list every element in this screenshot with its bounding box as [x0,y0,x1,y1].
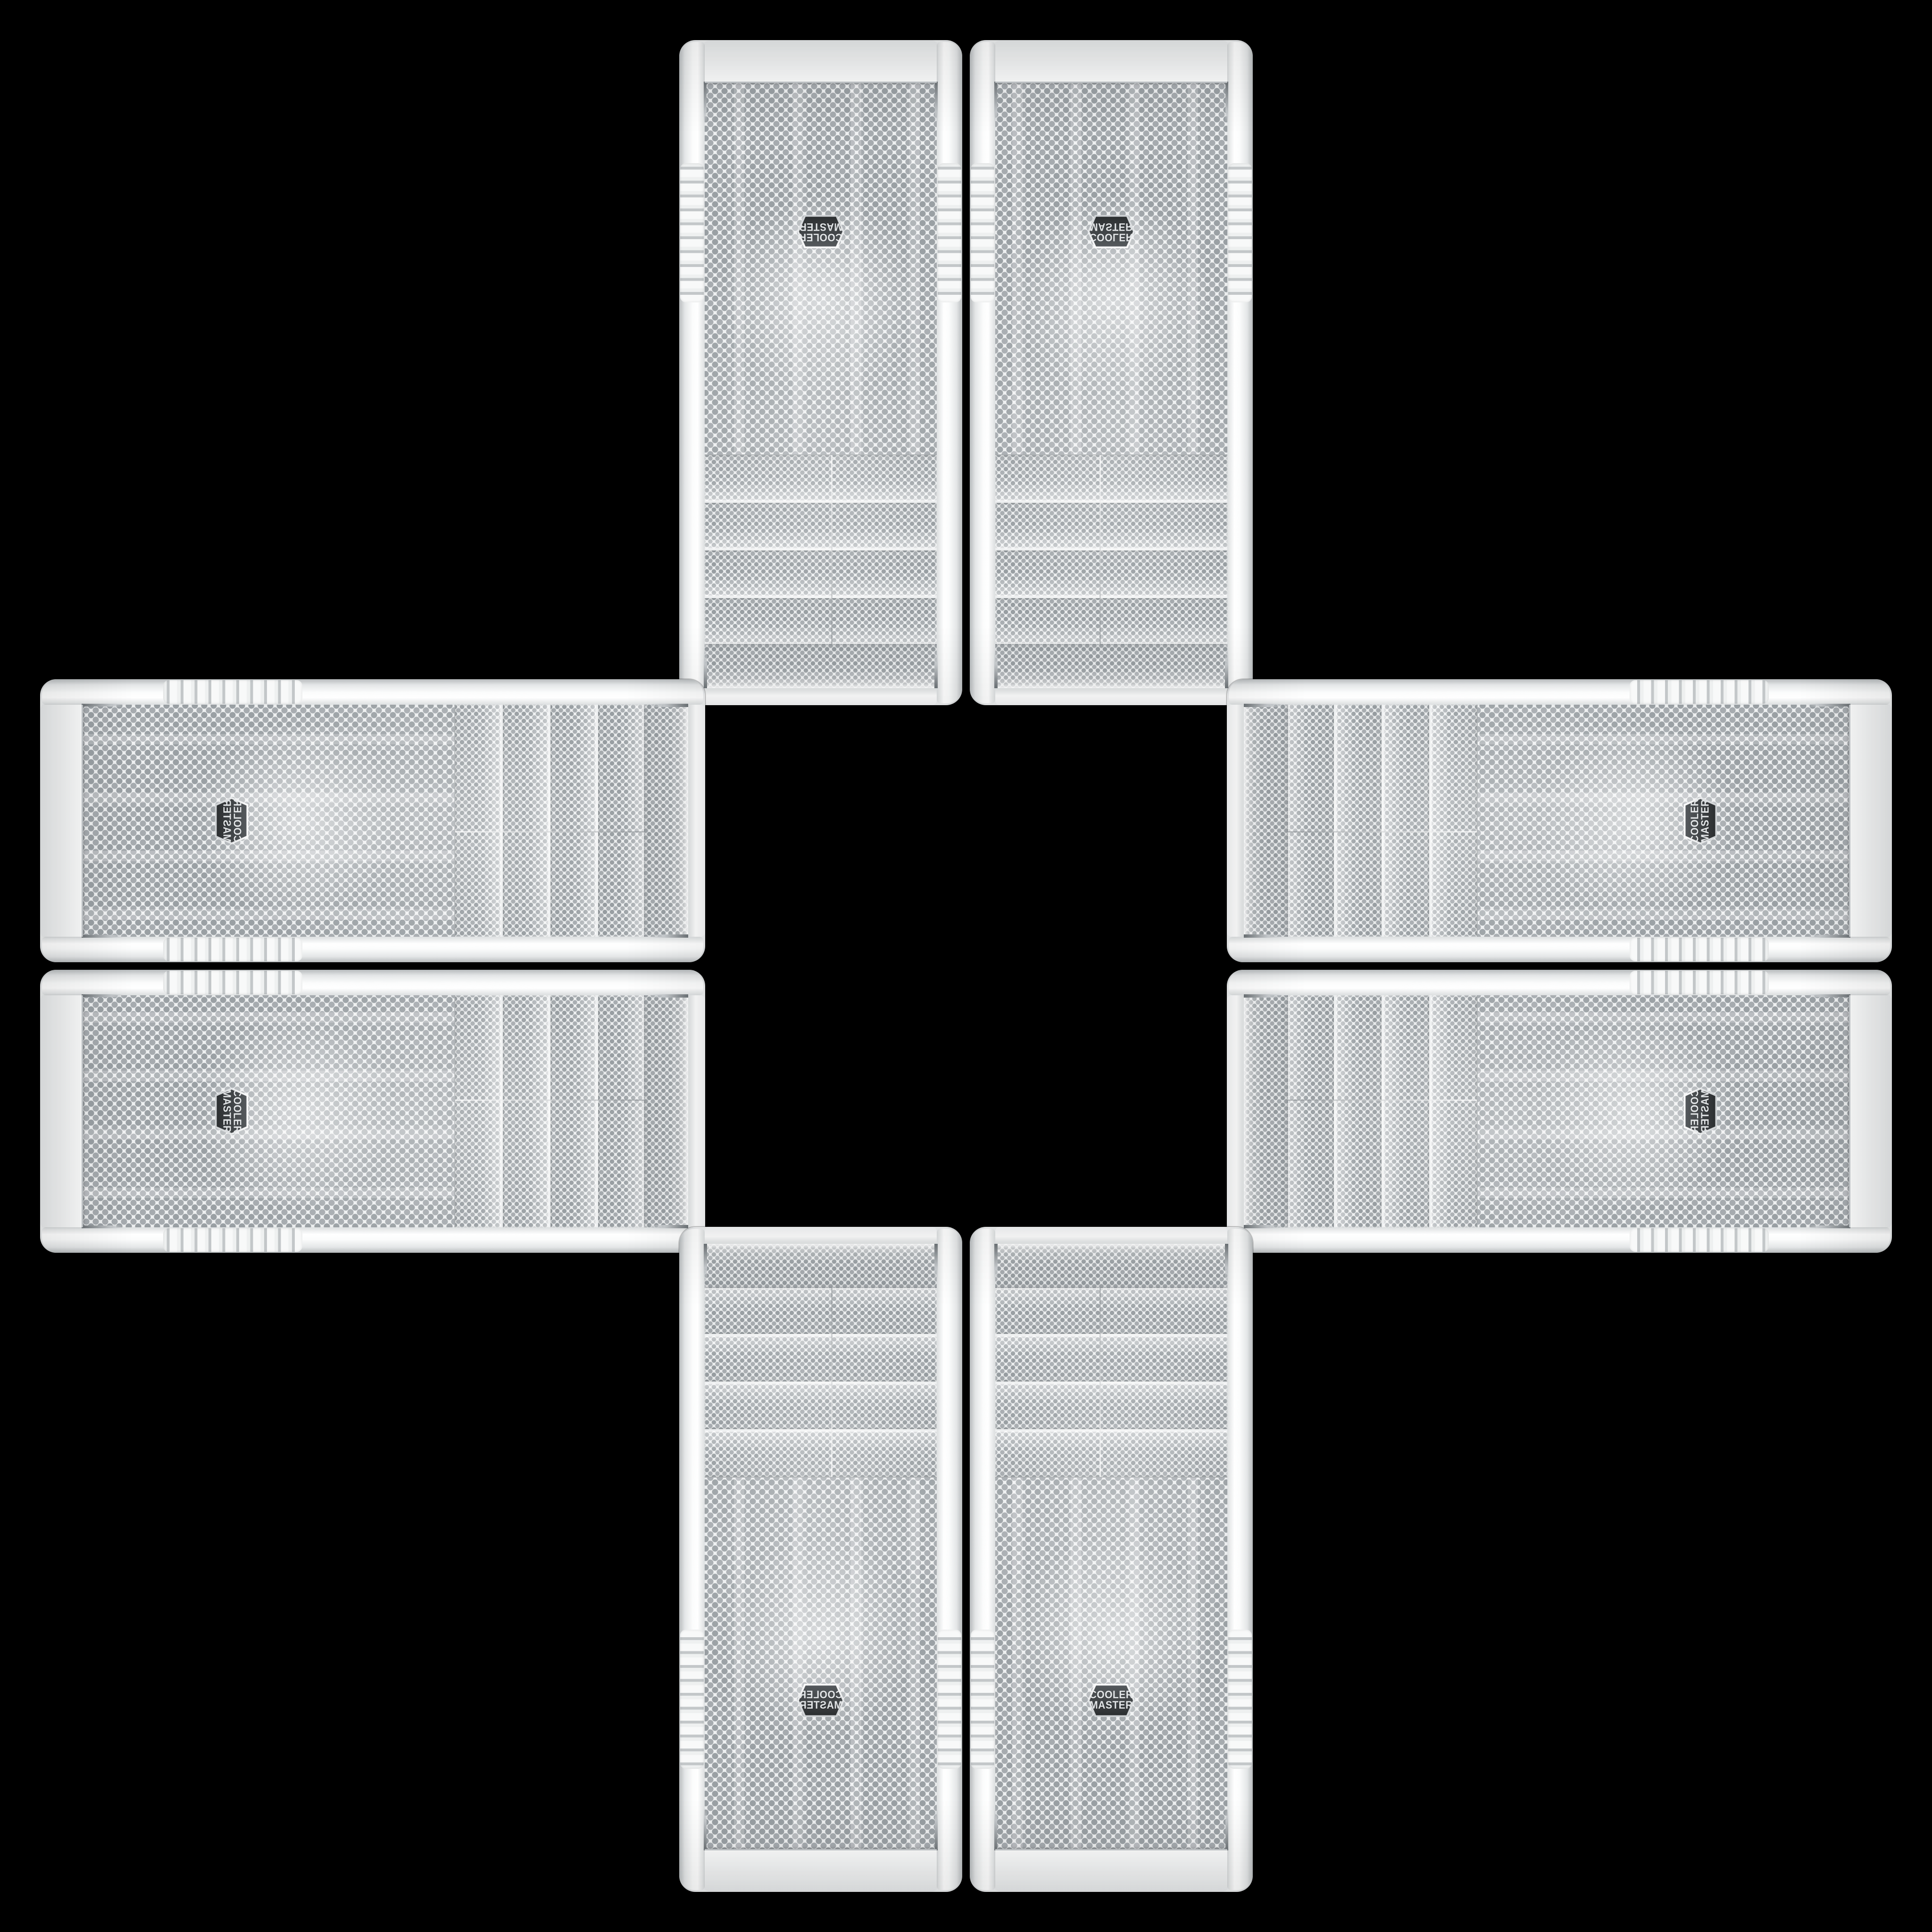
drive-bay-seam [1099,1288,1101,1477]
foot-bezel-scallops [705,40,937,83]
top-bezel [705,1227,937,1245]
drive-bay-cover [598,995,644,1227]
drive-bay-cover [995,503,1227,549]
top-bezel [995,687,1227,705]
pc-case-left-top: COOLER MASTER [40,679,705,962]
side-rail-right [1229,679,1890,705]
cooler-master-logo-icon: COOLER MASTER [799,215,842,248]
grip-ribs-right [680,1630,704,1769]
side-rail-right [679,42,705,703]
pc-case-right-top: COOLER MASTER [1227,679,1892,962]
side-rail-right [1227,42,1253,703]
drive-bay-cover [503,705,549,937]
badge-text-line1: COOLER [799,231,843,242]
front-panel: COOLER MASTER [1227,995,1892,1227]
badge-text-line2: MASTER [221,799,232,842]
top-vent-mesh [1244,705,1288,937]
top-vent-mesh [705,1244,937,1288]
top-vent-mesh [644,995,688,1227]
drive-bay-seam [1288,1099,1477,1101]
top-bezel [995,1227,1227,1245]
side-rail-right [42,1227,703,1253]
grip-ribs-right [1630,1228,1769,1252]
top-vent-mesh [995,1244,1227,1288]
side-rail-right [42,679,703,705]
drive-bay-cover [705,455,937,501]
side-rail-left [1229,937,1890,962]
badge-text-line1: COOLER [231,1090,242,1133]
drive-bay-cover [550,705,596,937]
drive-bay-seam [1288,831,1477,833]
grip-ribs-right [1228,163,1252,302]
side-rail-right [1229,1227,1890,1253]
front-panel: COOLER MASTER [705,40,937,705]
drive-bay-cover [1431,995,1477,1227]
grip-ribs-left [1630,971,1769,994]
drive-bay-seam [831,1288,833,1477]
front-mesh-panel: COOLER MASTER [705,82,937,455]
drive-bay-cover [705,503,937,549]
drive-bay-cover [1336,995,1382,1227]
front-mesh-panel: COOLER MASTER [995,82,1227,455]
drive-bays [995,455,1227,644]
drive-bay-cover [1288,705,1334,937]
drive-bay-cover [995,1288,1227,1334]
cooler-master-logo-icon: COOLER MASTER [215,799,248,842]
cooler-master-badge: COOLER MASTER [1088,1682,1135,1719]
cooler-master-logo-icon: COOLER MASTER [1684,799,1717,842]
drive-bay-cover [503,995,549,1227]
top-bezel [1227,705,1245,937]
grip-ribs-left [163,938,302,961]
foot-bezel-scallops [1849,705,1892,937]
foot-bezel-scallops [40,995,83,1227]
cooler-master-badge: COOLER MASTER [213,797,250,844]
side-rail-right [1227,1229,1253,1890]
drive-bay-seam [831,455,833,644]
badge-text-line2: MASTER [799,1700,842,1711]
drive-bay-cover [705,1288,937,1334]
badge-text-line1: COOLER [1090,231,1133,242]
drive-bay-cover [995,550,1227,596]
drive-bay-cover [705,550,937,596]
drive-bays [705,455,937,644]
drive-bay-cover [705,1431,937,1477]
foot-bezel-scallops [995,40,1227,83]
front-panel: COOLER MASTER [40,995,705,1227]
drive-bays [705,1288,937,1477]
front-mesh-panel: COOLER MASTER [1477,705,1850,937]
pc-case-right-bottom: COOLER MASTER [1227,970,1892,1253]
cooler-master-badge: COOLER MASTER [797,213,844,250]
grip-ribs-left [938,163,961,302]
drive-bay-cover [705,1383,937,1429]
pc-case-bottom-left: COOLER MASTER [679,1227,962,1892]
cooler-master-badge: COOLER MASTER [213,1088,250,1135]
side-rail-left [937,42,962,703]
side-rail-left [42,937,703,962]
badge-text-line2: MASTER [1700,1090,1711,1133]
cooler-master-logo-icon: COOLER MASTER [799,1684,842,1717]
cooler-master-logo-icon: COOLER MASTER [1090,215,1133,248]
cooler-master-badge: COOLER MASTER [1682,797,1719,844]
drive-bay-cover [705,598,937,644]
drive-bay-seam [1099,455,1101,644]
front-mesh-panel: COOLER MASTER [82,995,455,1227]
side-rail-left [42,970,703,995]
top-bezel [687,995,705,1227]
foot-bezel-scallops [705,1849,937,1892]
drive-bay-cover [455,705,501,937]
grip-ribs-left [163,971,302,994]
top-vent-mesh [995,644,1227,688]
drive-bay-seam [455,1099,644,1101]
cooler-master-badge: COOLER MASTER [1682,1088,1719,1135]
top-bezel [687,705,705,937]
top-vent-mesh [644,705,688,937]
cooler-master-logo-icon: COOLER MASTER [215,1090,248,1133]
drive-bay-cover [1288,995,1334,1227]
drive-bays [1288,995,1477,1227]
side-rail-left [1229,970,1890,995]
drive-bay-cover [995,1336,1227,1382]
pc-case-top-left: COOLER MASTER [679,40,962,705]
badge-text-line2: MASTER [1090,1700,1133,1711]
drive-bay-cover [995,455,1227,501]
top-vent-mesh [705,644,937,688]
front-mesh-panel: COOLER MASTER [995,1477,1227,1850]
grip-ribs-right [680,163,704,302]
drive-bay-cover [995,1383,1227,1429]
cooler-master-badge: COOLER MASTER [1088,213,1135,250]
drive-bay-cover [1383,995,1429,1227]
grip-ribs-left [938,1630,961,1769]
drive-bay-cover [1383,705,1429,937]
front-panel: COOLER MASTER [1227,705,1892,937]
drive-bay-cover [995,598,1227,644]
side-rail-right [679,1229,705,1890]
grip-ribs-left [971,163,994,302]
drive-bays [995,1288,1227,1477]
drive-bay-cover [1431,705,1477,937]
front-panel: COOLER MASTER [40,705,705,937]
drive-bay-cover [550,995,596,1227]
drive-bay-cover [1336,705,1382,937]
drive-bay-cover [455,995,501,1227]
side-rail-left [970,42,995,703]
top-vent-mesh [1244,995,1288,1227]
pc-case-top-right: COOLER MASTER [970,40,1253,705]
grip-ribs-left [1630,938,1769,961]
grip-ribs-right [1228,1630,1252,1769]
cooler-master-logo-icon: COOLER MASTER [1684,1090,1717,1133]
scene: COOLER MASTER [0,0,1932,1932]
badge-text-line2: MASTER [799,221,842,232]
grip-ribs-right [163,1228,302,1252]
side-rail-left [970,1229,995,1890]
front-panel: COOLER MASTER [995,1227,1227,1892]
foot-bezel-scallops [1849,995,1892,1227]
grip-ribs-right [1630,680,1769,704]
drive-bay-cover [705,1336,937,1382]
top-bezel [705,687,937,705]
drive-bays [455,705,644,937]
side-rail-left [937,1229,962,1890]
drive-bay-cover [995,1431,1227,1477]
top-bezel [1227,995,1245,1227]
front-mesh-panel: COOLER MASTER [1477,995,1850,1227]
drive-bay-seam [455,831,644,833]
front-mesh-panel: COOLER MASTER [705,1477,937,1850]
pc-case-bottom-right: COOLER MASTER [970,1227,1253,1892]
front-panel: COOLER MASTER [995,40,1227,705]
badge-text-line2: MASTER [221,1090,232,1133]
grip-ribs-right [163,680,302,704]
grip-ribs-left [971,1630,994,1769]
badge-text-line2: MASTER [1090,221,1133,232]
front-mesh-panel: COOLER MASTER [82,705,455,937]
foot-bezel-scallops [40,705,83,937]
badge-text-line2: MASTER [1700,799,1711,842]
pc-case-left-bottom: COOLER MASTER [40,970,705,1253]
drive-bay-cover [598,705,644,937]
foot-bezel-scallops [995,1849,1227,1892]
drive-bays [455,995,644,1227]
cooler-master-badge: COOLER MASTER [797,1682,844,1719]
drive-bays [1288,705,1477,937]
front-panel: COOLER MASTER [705,1227,937,1892]
badge-text-line1: COOLER [231,799,242,843]
cooler-master-logo-icon: COOLER MASTER [1090,1684,1133,1717]
